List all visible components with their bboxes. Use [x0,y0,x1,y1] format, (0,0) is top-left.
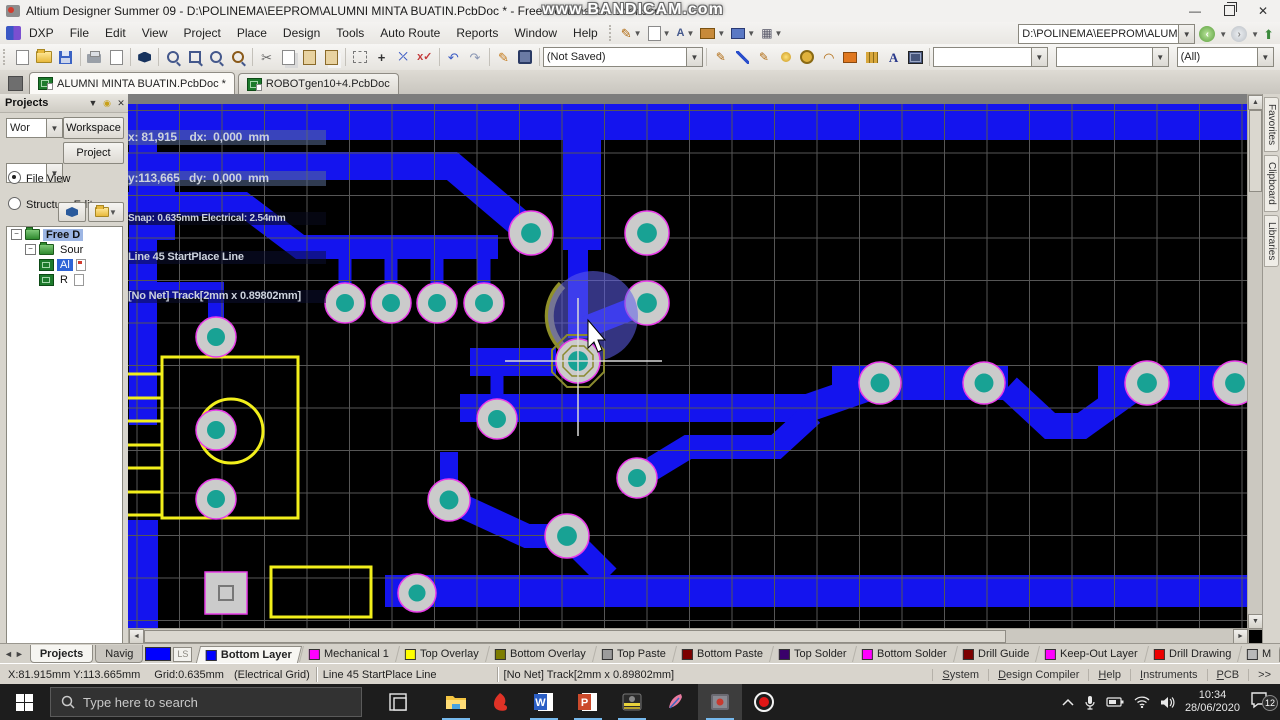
cross-select-icon: ⤫ [399,52,408,63]
status-panel-help[interactable]: Help [1088,669,1130,681]
layer-tab-label: Bottom Overlay [510,648,586,660]
cross-probe-button[interactable]: ⤫ [392,46,414,68]
separator [929,48,930,66]
pin-icon[interactable]: ◉ [100,96,114,110]
pcb-square-pad[interactable] [205,572,247,614]
folder-icon [39,244,54,255]
minimize-button[interactable]: — [1178,0,1212,21]
panel-tabs: ProjectsNavig [30,645,146,663]
pad-hole [871,374,890,393]
feather-app-icon [666,692,686,712]
dropdown-arrow-icon: ▼ [1257,48,1273,66]
right-tab-libraries[interactable]: Libraries [1264,215,1279,267]
word-icon: W [534,692,554,712]
document-path-value: D:\POLINEMA\EEPROM\ALUMNI N [1022,28,1194,40]
panel-close-icon[interactable]: ✕ [114,96,128,110]
altium-taskbar-icon [709,692,731,712]
document-tab-label: ROBOTgen10+4.PcbDoc [266,78,390,90]
paste-array-icon [325,50,338,65]
preview-page-icon [110,50,123,65]
file-view-label: File View [26,173,70,185]
redo-icon: ↷ [469,51,480,64]
layer-tab-top-paste[interactable]: Top Paste [592,646,675,662]
speaker-icon[interactable] [1160,696,1175,709]
place-component-button[interactable] [904,46,926,68]
scroll-right-icon[interactable]: ► [1233,629,1248,644]
tree-item-free-d[interactable]: −Free D [7,227,122,242]
pad-hole [475,294,493,312]
altium-app-icon [6,5,20,17]
paste-array-button[interactable] [321,46,343,68]
layer-tab-mechanical-1[interactable]: Mechanical 1 [299,646,398,662]
layer-color-swatch [963,648,974,659]
file-view-radio[interactable]: File View [8,171,70,185]
navigation-cluster: D:\POLINEMA\EEPROM\ALUMNI N▼ ‹ ▼ › ▼ ⬆ [1018,24,1274,44]
save-floppy-icon [59,51,72,64]
board-3d-button[interactable] [134,46,156,68]
layer-color-swatch [309,648,320,659]
zoom-in-icon [210,51,222,63]
layer-tab-label: Top Paste [617,648,666,660]
right-tab-clipboard[interactable]: Clipboard [1264,155,1279,212]
system-tray: 10:34 28/06/2020 12 [1062,684,1272,720]
separator [539,48,540,66]
menu-place[interactable]: Place [229,24,275,42]
caret-down-icon: ▼ [747,29,755,38]
wifi-icon[interactable] [1134,696,1150,708]
scissors-icon: ✂ [261,51,272,64]
status-bar: X:81.915mm Y:113.665mm Grid:0.635mm (Ele… [0,663,1280,685]
interactive-routing-button[interactable]: ✎ [493,46,515,68]
tree-item-r[interactable]: R [7,272,122,287]
pad-hole [1225,373,1245,393]
open-project-button[interactable]: ▼ [88,202,124,222]
layer-tab-drill-drawing[interactable]: Drill Drawing [1144,646,1240,662]
layer-tab-top-solder[interactable]: Top Solder [769,646,856,662]
separator [497,667,498,682]
component-icon [908,51,923,64]
status-panel-instruments[interactable]: Instruments [1130,669,1206,681]
place-interactive-route-button[interactable]: ✎ [710,46,732,68]
print-preview-button[interactable] [105,46,127,68]
document-tab-0[interactable]: ALUMNI MINTA BUATIN.PcbDoc * [29,72,235,94]
route-pencil-icon: ✎ [498,51,509,64]
layer-tab-bar: ◄ ► ProjectsNavig LS Bottom LayerMechani… [0,643,1280,664]
projects-panel-title: Projects [5,97,86,109]
zoom-in-button[interactable] [206,46,228,68]
find-text-tool[interactable]: A▼ [676,28,694,39]
print-button[interactable] [84,46,106,68]
mask-filter-combo[interactable]: (All)▼ [1177,47,1274,67]
layer-color-swatch [1045,648,1056,659]
fill-icon [843,52,857,63]
mask-filter-value: (All) [1181,51,1217,63]
document-options-tool[interactable]: ▼ [648,26,671,41]
canvas-top-edge [128,94,1247,104]
dropdown-arrow-icon: ▼ [1031,48,1047,66]
sort-button[interactable] [58,202,86,222]
heads-up-display: x: 81,915 dx: 0,000 mm y:113,665 dy: 0,0… [128,104,326,316]
tree-collapse-icon[interactable]: − [11,229,22,240]
layer-tabs: Bottom LayerMechanical 1Top OverlayBotto… [198,646,1279,663]
place-fill-button[interactable] [840,46,862,68]
task-view-button[interactable] [376,684,420,720]
pad-hole [628,469,646,487]
layer-tab-label: Bottom Solder [877,648,947,660]
close-button[interactable]: ✕ [1246,0,1280,21]
clear-filter-icon: x✓ [417,52,432,63]
layer-tab-label: Top Solder [794,648,847,660]
undo-button[interactable]: ↶ [443,46,465,68]
project-button[interactable]: Project [63,142,124,164]
red-media-app-button[interactable] [478,684,522,720]
cube-icon [66,207,78,217]
caret-down-icon: ▼ [109,208,117,217]
scroll-up-icon[interactable]: ▲ [1248,95,1263,110]
up-one-level-icon[interactable]: ⬆ [1263,28,1274,41]
undo-icon: ↶ [448,51,459,64]
main-toolbar: ✂ + ⤫ x✓ ↶ ↷ ✎ (Not Saved)▼ ✎ ✎ ◠ A ▼ ▼ … [0,44,1280,71]
move-cross-icon: + [378,51,386,64]
separator [130,48,131,66]
zoom-area-button[interactable] [184,46,206,68]
grid-mode: (Electrical Grid) [234,669,310,681]
printer-icon [87,54,101,63]
dxp-logo-icon [6,26,21,40]
copy-icon [282,50,295,65]
diff-route-icon: ✎ [759,51,769,63]
menu-design[interactable]: Design [275,24,328,42]
pencil-icon: ✎ [621,27,632,40]
find-similar-button[interactable] [514,46,536,68]
bandicam-record-button[interactable] [742,684,786,720]
restore-button[interactable] [1212,0,1246,21]
clipboard-icon [303,50,316,65]
pad-hole [207,328,225,346]
pad-hole [975,374,994,393]
powerpoint-button[interactable]: P [566,684,610,720]
menu-bar: DXPFileEditViewProjectPlaceDesignToolsAu… [0,22,1280,45]
layer-color-swatch [495,648,506,659]
separator [439,48,440,66]
projects-panel-header: Projects ▼ ◉ ✕ [0,94,128,113]
hud-snap-row: Snap: 0.635mm Electrical: 2.54mm [128,212,326,225]
status-panel-design-compiler[interactable]: Design Compiler [988,669,1088,681]
pad-icon [781,52,791,62]
layer-color-swatch [1247,648,1258,659]
workspace-combo-value: Wor [10,122,46,134]
zoom-selection-icon [232,51,244,63]
tree-collapse-icon[interactable]: − [25,244,36,255]
vertical-scroll-thumb[interactable] [1249,110,1262,192]
dropdown-arrow-icon: ▼ [1152,48,1168,66]
document-state-combo[interactable]: (Not Saved)▼ [543,47,703,67]
pad-hole [207,490,225,508]
place-arc-button[interactable]: ◠ [818,46,840,68]
forward-button[interactable]: › [1231,26,1247,42]
action-center-button[interactable]: 12 [1250,691,1272,713]
separator [706,48,707,66]
layer-tab-label: Bottom Paste [697,648,763,660]
scroll-left-icon[interactable]: ◄ [129,629,144,644]
layer-color-swatch [602,648,613,659]
file-explorer-icon [445,693,467,711]
menu-help[interactable]: Help [565,24,606,42]
pad-hole [1137,373,1157,393]
hud-x-row: x: 81,915 dx: 0,000 mm [128,130,326,145]
menu-edit[interactable]: Edit [97,24,134,42]
caret-down-icon: ▼ [634,29,642,38]
layer-tab-bottom-solder[interactable]: Bottom Solder [852,646,956,662]
layer-tab-label: Top Overlay [420,648,479,660]
caret-down-icon: ▼ [775,29,783,38]
hud-track-row: [No Net] Track[2mm x 0.89802mm] [128,290,326,303]
taskbar-clock[interactable]: 10:34 28/06/2020 [1185,689,1240,715]
word-letter: W [535,697,546,709]
horizontal-scroll-thumb[interactable] [144,630,1006,643]
layer-color-swatch [862,648,873,659]
clock-date: 28/06/2020 [1185,702,1240,715]
grid-value: Grid:0.635mm [154,669,224,681]
current-layer-swatch [145,647,171,661]
window-controls: — ✕ [1178,0,1280,21]
separator [345,48,346,66]
board-shape-tool[interactable]: ▼ [731,28,755,39]
pad-array-icon [866,52,878,63]
hidden-icons-chevron-icon[interactable] [1062,698,1074,706]
layer-tab-drill-guide[interactable]: Drill Guide [953,646,1038,662]
document-tab-label: ALUMNI MINTA BUATIN.PcbDoc * [57,78,226,90]
pad-hole [382,294,400,312]
layer-tab-bottom-paste[interactable]: Bottom Paste [672,646,772,662]
layer-tab-label: Drill Drawing [1169,648,1231,660]
place-track-button[interactable] [732,46,754,68]
layer-tab-label: Bottom Layer [221,649,292,661]
document-tab-bar: ALUMNI MINTA BUATIN.PcbDoc *ROBOTgen10+4… [0,70,1280,95]
pcb-document-icon [247,78,262,91]
move-button[interactable]: + [371,46,393,68]
windows-taskbar: Type here to search W P [0,684,1280,720]
right-panel-tabs: FavoritesClipboardLibraries [1262,94,1280,643]
layer-color-swatch [779,648,790,659]
tree-item-label: R [57,274,71,286]
layer-tab-m[interactable]: M [1237,646,1280,662]
panel-control-icon[interactable] [8,76,23,91]
track-info: [No Net] Track[2mm x 0.89802mm] [504,669,675,681]
cut-button[interactable]: ✂ [256,46,278,68]
panel-tab-navig[interactable]: Navig [95,645,143,663]
dropdown-arrow-icon: ▼ [1178,25,1194,43]
place-differential-button[interactable]: ✎ [753,46,775,68]
paste-button[interactable] [299,46,321,68]
document-state-value: (Not Saved) [547,51,622,63]
menu-view[interactable]: View [134,24,176,42]
tree-item-label: Sour [57,244,86,256]
filter-combo-2[interactable]: ▼ [1056,47,1169,67]
status-panel--[interactable]: >> [1248,669,1280,681]
tree-item-label: Free D [43,229,83,241]
separator [489,48,490,66]
dropdown-arrow-icon: ▼ [686,48,702,66]
document-tab-1[interactable]: ROBOTgen10+4.PcbDoc [238,73,399,94]
select-area-button[interactable] [349,46,371,68]
layer-tab-label: Mechanical 1 [324,648,389,660]
pcb-document-icon [38,77,53,90]
altium-taskbar-button[interactable] [698,684,742,720]
place-pad-button[interactable] [775,46,797,68]
via-icon [800,50,814,64]
page-icon [648,26,661,41]
pad-hole [637,223,657,243]
zoom-all-icon [167,51,179,63]
separator [158,48,159,66]
striped-media-app-icon [622,692,642,712]
pad-hole [637,293,657,313]
red-media-app-icon [491,692,509,712]
layer-color-swatch [405,648,416,659]
panel-scroll-left-icon[interactable]: ◄ [4,649,13,659]
word-button[interactable]: W [522,684,566,720]
back-button[interactable]: ‹ [1199,26,1215,42]
pad-hole [521,223,541,243]
place-route-icon: ✎ [716,51,726,63]
redo-button[interactable]: ↷ [464,46,486,68]
toolbar-grip [609,25,615,41]
feather-app-button[interactable] [654,684,698,720]
caret-down-icon: ▼ [1251,30,1259,39]
place-via-button[interactable] [796,46,818,68]
menu-window[interactable]: Window [506,24,565,42]
document-status-icon [74,274,84,286]
menu-file[interactable]: File [62,24,97,42]
menu-dxp[interactable]: DXP [21,24,62,42]
board-3d-icon [138,52,151,63]
windows-logo-icon [16,694,33,711]
save-button[interactable] [55,46,77,68]
layer-tab-bottom-overlay[interactable]: Bottom Overlay [485,646,595,662]
clock-time: 10:34 [1185,689,1240,702]
toolbar-grip [3,49,9,65]
taskbar-search-input[interactable]: Type here to search [50,687,362,717]
copy-button[interactable] [277,46,299,68]
right-tab-favorites[interactable]: Favorites [1264,97,1279,152]
caret-down-icon: ▼ [717,29,725,38]
tree-item-sour[interactable]: −Sour [7,242,122,257]
menu-reports[interactable]: Reports [448,24,506,42]
panel-tab-projects[interactable]: Projects [30,645,93,663]
search-placeholder: Type here to search [83,695,198,710]
bandicam-record-icon [753,691,775,713]
pad-hole [428,294,446,312]
pad-hole [408,584,425,601]
pad-hole [440,491,459,510]
menu-project[interactable]: Project [176,24,229,42]
pad-hole [207,421,225,439]
layer-tab-label: Drill Guide [978,648,1029,660]
layer-tab-label: M [1262,648,1271,660]
menu-items: DXPFileEditViewProjectPlaceDesignToolsAu… [21,24,606,42]
grid-tool[interactable]: ▦▼ [761,27,782,39]
new-document-icon [16,50,29,65]
menu-auto-route[interactable]: Auto Route [372,24,448,42]
workspace-button[interactable]: Workspace [63,117,124,139]
place-array-button[interactable] [861,46,883,68]
hud-y-row: y:113,665 dy: 0,000 mm [128,171,326,186]
filter-combo-1[interactable]: ▼ [933,47,1048,67]
current-action: Line 45 StartPlace Line [323,669,437,681]
notification-badge: 12 [1262,695,1278,711]
folder-icon [25,229,40,240]
panel-menu-icon[interactable]: ▼ [86,96,100,110]
hud-action-row: Line 45 StartPlace Line [128,251,326,264]
menu-tools[interactable]: Tools [328,24,372,42]
place-string-button[interactable]: A [883,46,905,68]
track-icon [736,51,749,64]
start-button[interactable] [0,684,48,720]
pcb-file-icon [39,259,54,271]
powerpoint-icon: P [578,692,598,712]
pad-hole [557,526,577,546]
battery-icon[interactable] [1106,696,1124,708]
bandicam-watermark: www.BANDICAM.com [488,1,778,19]
tree-item-label: Al [57,259,73,271]
layer-color-swatch [1154,648,1165,659]
radio-icon [8,197,21,210]
status-panel-system[interactable]: System [932,669,988,681]
zoom-selection-button[interactable] [227,46,249,68]
layer-tab-bottom-layer[interactable]: Bottom Layer [196,646,302,663]
clear-filter-button[interactable]: x✓ [414,46,436,68]
separator [80,48,81,66]
cursor-position: X:81.915mm Y:113.665mm [8,669,140,681]
document-status-icon [76,259,86,271]
panel-scroll-right-icon[interactable]: ► [15,649,24,659]
caret-down-icon: ▼ [663,29,671,38]
layer-tab-keep-out-layer[interactable]: Keep-Out Layer [1035,646,1147,662]
caret-down-icon: ▼ [686,29,694,38]
zoom-area-icon [189,51,201,63]
pad-hole [336,294,354,312]
selection-rect-icon [353,51,367,63]
layer-tab-label: Keep-Out Layer [1060,648,1138,660]
tree-item-al[interactable]: Al [7,257,122,272]
projects-panel: Projects ▼ ◉ ✕ Wor▼ Workspace ▼ Project … [0,94,129,643]
status-panel-pcb[interactable]: PCB [1207,669,1249,681]
layer-tab-top-overlay[interactable]: Top Overlay [395,646,488,662]
restore-icon [1224,5,1235,16]
snippets-tool[interactable]: ✎▼ [621,27,642,40]
pad-hole [488,410,506,428]
search-icon [61,695,75,709]
zoom-document-button[interactable] [162,46,184,68]
caret-down-icon: ▼ [1219,30,1227,39]
scroll-down-icon[interactable]: ▼ [1248,614,1263,629]
pcb-file-icon [39,274,54,286]
open-button[interactable] [34,46,56,68]
room-tool[interactable]: ▼ [700,28,725,39]
string-icon: A [889,51,898,64]
microphone-icon[interactable] [1084,695,1096,710]
radio-selected-icon [8,171,21,184]
layer-set-button[interactable]: LS [173,647,192,662]
separator [252,48,253,66]
workspace-combo[interactable]: Wor▼ [6,118,63,138]
striped-media-app-button[interactable] [610,684,654,720]
file-explorer-button[interactable] [434,684,478,720]
new-document-button[interactable] [12,46,34,68]
document-path-combo[interactable]: D:\POLINEMA\EEPROM\ALUMNI N▼ [1018,24,1195,44]
separator [316,667,317,682]
